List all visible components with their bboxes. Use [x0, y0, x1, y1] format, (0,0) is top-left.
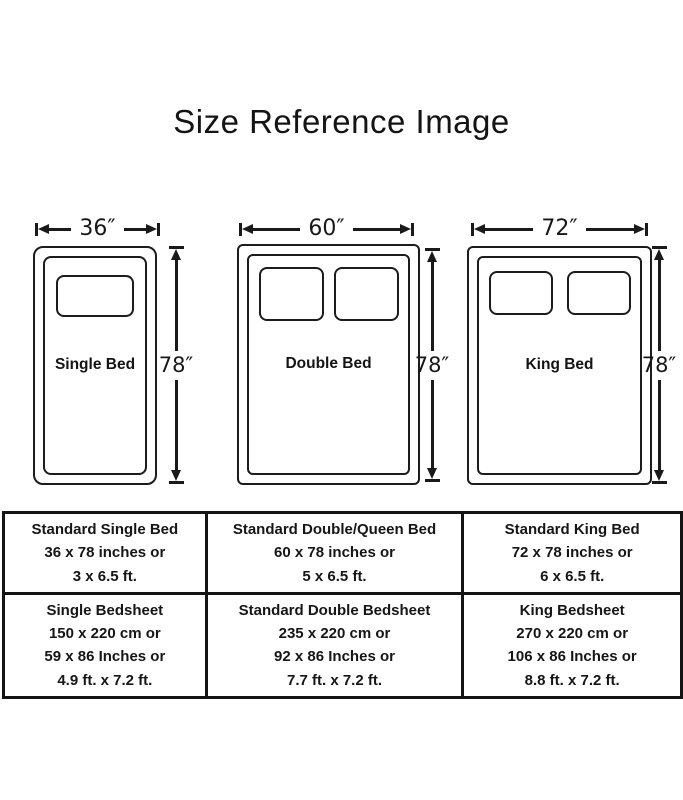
arrow-endbar-icon — [652, 481, 667, 484]
table-cell-line: 92 x 86 Inches or — [210, 645, 460, 668]
table-cell-line: 3 x 6.5 ft. — [7, 565, 203, 588]
arrowhead-down-icon — [427, 468, 437, 479]
arrowhead-up-icon — [654, 249, 664, 260]
table-cell-line: 235 x 220 cm or — [210, 622, 460, 645]
height-dimension-label: 78″ — [642, 351, 677, 380]
table-cell-line: Standard King Bed — [466, 518, 678, 541]
pillow — [259, 267, 324, 321]
table-cell-standard-king-bed: Standard King Bed 72 x 78 inches or 6 x … — [463, 513, 682, 594]
arrow-endbar-icon — [425, 479, 440, 482]
arrowhead-up-icon — [171, 249, 181, 260]
table-cell-line: Single Bedsheet — [7, 599, 203, 622]
table-cell-line: 270 x 220 cm or — [466, 622, 678, 645]
page-title: Size Reference Image — [0, 103, 683, 141]
arrow-endbar-icon — [645, 223, 648, 236]
bed-figure-single: 36″ Single Bed 78″ — [20, 218, 220, 486]
bed-outline-double: Double Bed — [237, 244, 420, 485]
bed-label: King Bed — [469, 356, 650, 374]
width-arrow: 60″ — [239, 216, 414, 242]
table-cell-line: 36 x 78 inches or — [7, 541, 203, 564]
height-dimension-label: 78″ — [159, 351, 194, 380]
table-cell-line: 59 x 86 Inches or — [7, 645, 203, 668]
table-cell-line: King Bedsheet — [466, 599, 678, 622]
table-cell-line: 72 x 78 inches or — [466, 541, 678, 564]
arrow-endbar-icon — [157, 223, 160, 236]
table-row-bedsheets: Single Bedsheet 150 x 220 cm or 59 x 86 … — [4, 593, 682, 697]
table-row-beds: Standard Single Bed 36 x 78 inches or 3 … — [4, 513, 682, 594]
pillow — [56, 275, 134, 317]
table-cell-line: 106 x 86 Inches or — [466, 645, 678, 668]
table-cell-line: 5 x 6.5 ft. — [210, 565, 460, 588]
arrowhead-left-icon — [474, 224, 485, 234]
table-cell-line: 6 x 6.5 ft. — [466, 565, 678, 588]
bed-label: Single Bed — [35, 356, 155, 374]
pillow — [567, 271, 631, 315]
table-cell-line: Standard Single Bed — [7, 518, 203, 541]
width-dimension-label: 36″ — [71, 218, 123, 240]
bed-outline-single: Single Bed — [33, 246, 157, 485]
table-cell-double-bedsheet: Standard Double Bedsheet 235 x 220 cm or… — [206, 593, 463, 697]
arrowhead-down-icon — [654, 470, 664, 481]
table-cell-line: Standard Double Bedsheet — [210, 599, 460, 622]
height-arrow: 78″ — [410, 248, 454, 482]
height-arrow: 78″ — [154, 246, 198, 484]
bed-label: Double Bed — [239, 355, 418, 373]
table-cell-standard-single-bed: Standard Single Bed 36 x 78 inches or 3 … — [4, 513, 207, 594]
width-dimension-label: 72″ — [533, 218, 585, 240]
table-cell-king-bedsheet: King Bedsheet 270 x 220 cm or 106 x 86 I… — [463, 593, 682, 697]
height-arrow: 78″ — [637, 246, 681, 484]
bed-figure-double: 60″ Double Bed 78″ — [225, 218, 455, 486]
arrowhead-up-icon — [427, 251, 437, 262]
arrow-endbar-icon — [411, 223, 414, 236]
arrowhead-right-icon — [400, 224, 411, 234]
arrowhead-right-icon — [146, 224, 157, 234]
table-cell-line: 150 x 220 cm or — [7, 622, 203, 645]
table-cell-line: 4.9 ft. x 7.2 ft. — [7, 669, 203, 692]
width-dimension-label: 60″ — [300, 218, 352, 240]
table-cell-standard-double-bed: Standard Double/Queen Bed 60 x 78 inches… — [206, 513, 463, 594]
arrowhead-down-icon — [171, 470, 181, 481]
arrowhead-left-icon — [38, 224, 49, 234]
table-cell-single-bedsheet: Single Bedsheet 150 x 220 cm or 59 x 86 … — [4, 593, 207, 697]
bed-outline-king: King Bed — [467, 246, 652, 485]
table-cell-line: Standard Double/Queen Bed — [210, 518, 460, 541]
arrowhead-left-icon — [242, 224, 253, 234]
width-arrow: 72″ — [471, 216, 648, 242]
size-table: Standard Single Bed 36 x 78 inches or 3 … — [2, 511, 683, 699]
size-reference-page: Size Reference Image 36″ Single Bed 78″ — [0, 0, 683, 800]
table-cell-line: 8.8 ft. x 7.2 ft. — [466, 669, 678, 692]
table-cell-line: 60 x 78 inches or — [210, 541, 460, 564]
pillow — [334, 267, 399, 321]
arrowhead-right-icon — [634, 224, 645, 234]
table-cell-line: 7.7 ft. x 7.2 ft. — [210, 669, 460, 692]
width-arrow: 36″ — [35, 216, 160, 242]
arrow-endbar-icon — [169, 481, 184, 484]
pillow — [489, 271, 553, 315]
bed-figure-king: 72″ King Bed 78″ — [455, 218, 683, 486]
height-dimension-label: 78″ — [415, 351, 450, 380]
